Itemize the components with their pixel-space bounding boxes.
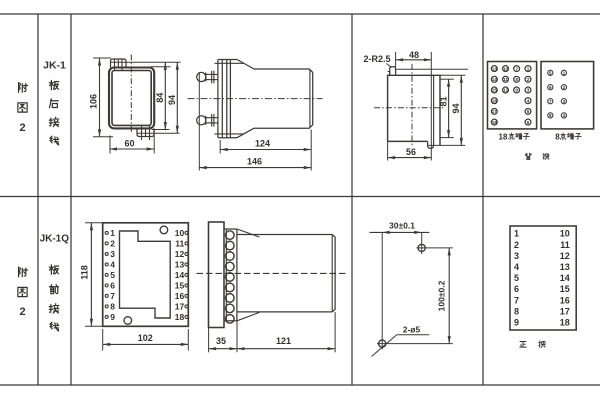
svg-text:1: 1 (527, 66, 530, 71)
svg-text:48: 48 (409, 50, 419, 60)
svg-text:8: 8 (110, 301, 115, 311)
svg-text:11: 11 (175, 238, 184, 248)
svg-text:6: 6 (110, 280, 115, 290)
svg-text:2: 2 (514, 240, 519, 250)
svg-text:124: 124 (255, 139, 270, 149)
svg-text:8: 8 (514, 306, 519, 316)
svg-text:10: 10 (175, 228, 185, 238)
svg-text:8: 8 (515, 77, 518, 82)
svg-text:12: 12 (503, 88, 509, 93)
svg-text:11: 11 (560, 240, 570, 250)
svg-text:15: 15 (175, 280, 185, 290)
svg-text:3: 3 (110, 249, 115, 259)
svg-text:9: 9 (514, 318, 519, 328)
svg-text:15: 15 (560, 284, 570, 294)
svg-text:8: 8 (555, 133, 560, 142)
svg-text:7: 7 (514, 295, 519, 305)
svg-text:121: 121 (276, 336, 291, 346)
svg-text:4: 4 (514, 262, 519, 272)
svg-text:1: 1 (563, 71, 566, 76)
svg-text:18: 18 (560, 318, 570, 328)
svg-text:1: 1 (110, 228, 115, 238)
svg-text:3: 3 (527, 88, 530, 93)
svg-text:94: 94 (167, 95, 177, 105)
svg-text:5: 5 (514, 273, 519, 283)
svg-text:6: 6 (527, 120, 530, 125)
svg-text:5: 5 (110, 270, 115, 280)
svg-text:2: 2 (19, 122, 25, 134)
svg-text:35: 35 (216, 336, 226, 346)
svg-text:9: 9 (110, 312, 115, 322)
svg-text:118: 118 (80, 265, 90, 280)
svg-text:84: 84 (155, 93, 165, 103)
svg-text:5: 5 (527, 109, 530, 114)
svg-text:7: 7 (110, 291, 115, 301)
svg-text:13: 13 (492, 66, 498, 71)
svg-text:JK-1: JK-1 (43, 60, 66, 72)
svg-text:18: 18 (499, 133, 508, 142)
svg-text:1: 1 (514, 229, 519, 239)
svg-text:2-R2.5: 2-R2.5 (363, 54, 390, 64)
svg-text:94: 94 (451, 103, 461, 113)
svg-text:100±0.2: 100±0.2 (436, 280, 446, 311)
svg-text:4: 4 (527, 98, 530, 103)
svg-text:17: 17 (175, 301, 185, 311)
svg-text:106: 106 (88, 94, 98, 109)
svg-text:81: 81 (438, 96, 448, 106)
svg-text:56: 56 (406, 147, 416, 157)
svg-text:17: 17 (560, 306, 570, 316)
svg-text:4: 4 (110, 259, 115, 269)
svg-text:4: 4 (563, 113, 566, 118)
svg-text:2: 2 (563, 85, 566, 90)
svg-text:6: 6 (514, 284, 519, 294)
svg-text:30±0.1: 30±0.1 (389, 221, 415, 231)
svg-text:14: 14 (492, 77, 498, 82)
svg-text:13: 13 (560, 262, 570, 272)
svg-text:17: 17 (492, 109, 498, 114)
svg-text:8: 8 (549, 113, 552, 118)
svg-text:15: 15 (492, 88, 498, 93)
svg-text:2: 2 (19, 306, 25, 318)
svg-text:16: 16 (560, 295, 570, 305)
svg-text:9: 9 (515, 88, 518, 93)
svg-text:3: 3 (514, 251, 519, 261)
svg-text:7: 7 (515, 66, 518, 71)
svg-text:6: 6 (549, 85, 552, 90)
svg-text:10: 10 (560, 229, 570, 239)
svg-text:102: 102 (138, 333, 153, 343)
svg-text:10: 10 (503, 66, 509, 71)
svg-text:60: 60 (124, 139, 134, 149)
svg-text:146: 146 (247, 157, 262, 167)
svg-text:3: 3 (563, 99, 566, 104)
svg-text:14: 14 (175, 270, 185, 280)
svg-text:2: 2 (110, 238, 115, 248)
svg-text:2: 2 (527, 77, 530, 82)
svg-text:13: 13 (175, 259, 185, 269)
svg-text:12: 12 (175, 249, 185, 259)
svg-text:11: 11 (503, 77, 508, 82)
svg-text:2-ø5: 2-ø5 (403, 325, 421, 335)
svg-text:5: 5 (549, 71, 552, 76)
svg-text:18: 18 (492, 120, 498, 125)
svg-text:16: 16 (175, 291, 185, 301)
svg-text:JK-1Q: JK-1Q (40, 234, 70, 245)
svg-text:14: 14 (560, 273, 570, 283)
svg-text:12: 12 (560, 251, 570, 261)
svg-text:7: 7 (549, 99, 552, 104)
svg-text:18: 18 (175, 312, 185, 322)
svg-text:16: 16 (492, 98, 498, 103)
